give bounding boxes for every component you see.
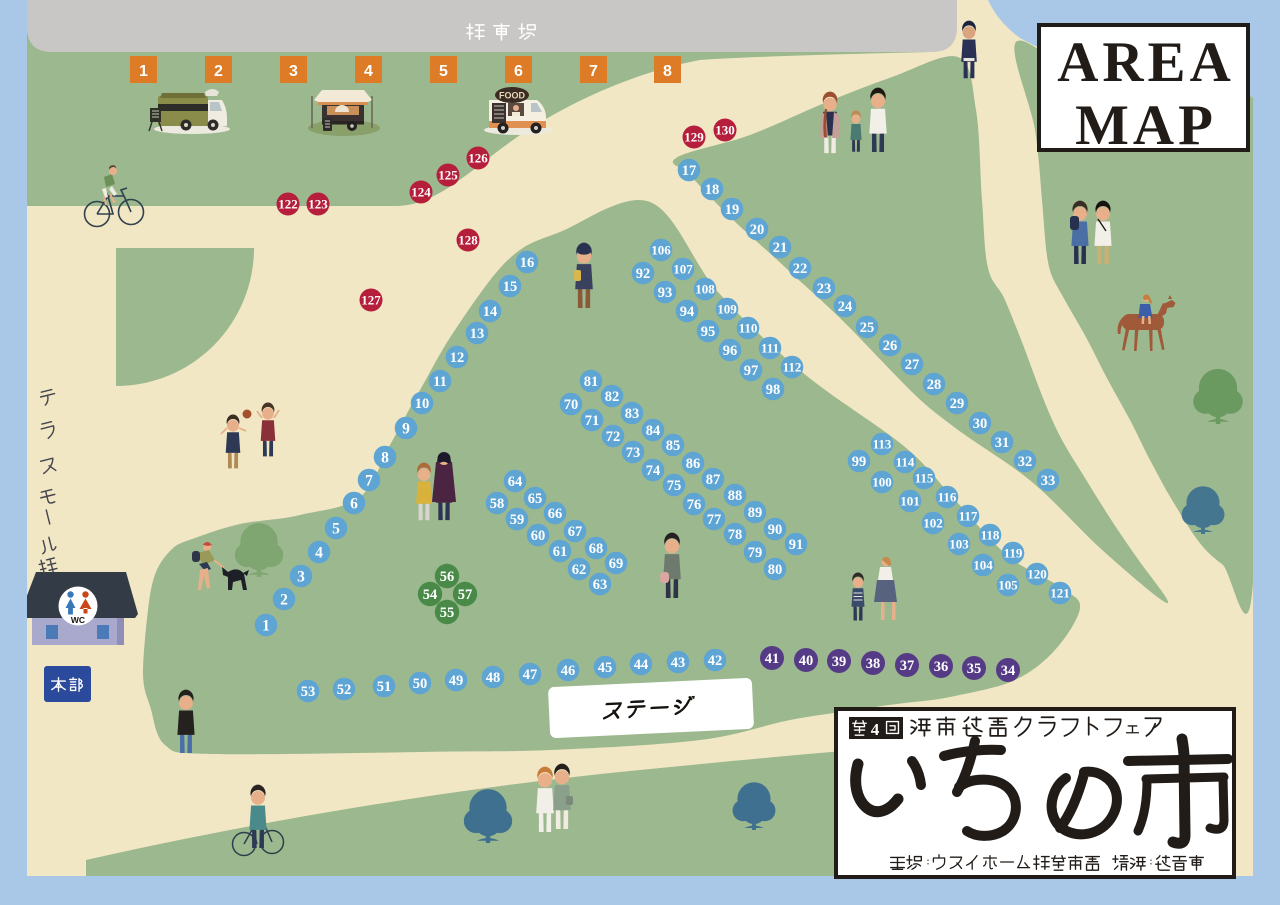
svg-text:105: 105 (998, 578, 1018, 593)
svg-text:128: 128 (458, 233, 478, 248)
svg-text:72: 72 (606, 429, 621, 445)
svg-text:52: 52 (337, 682, 352, 698)
svg-text:43: 43 (671, 655, 686, 671)
svg-text:28: 28 (927, 377, 942, 393)
svg-text:93: 93 (658, 285, 673, 301)
svg-text:18: 18 (705, 182, 720, 198)
svg-text:8: 8 (381, 450, 389, 467)
svg-text:WC: WC (71, 615, 85, 625)
svg-text:AREA: AREA (1057, 31, 1235, 94)
svg-text:76: 76 (687, 497, 702, 513)
svg-text:FOOD: FOOD (499, 91, 525, 101)
svg-text:25: 25 (860, 320, 875, 336)
svg-text:88: 88 (728, 488, 743, 504)
svg-text:51: 51 (377, 679, 392, 695)
svg-text:100: 100 (872, 475, 892, 490)
svg-text:115: 115 (915, 471, 934, 486)
svg-text:49: 49 (449, 673, 464, 689)
svg-text:3: 3 (297, 569, 305, 586)
svg-text:7: 7 (589, 63, 598, 80)
svg-text:38: 38 (866, 656, 881, 672)
svg-text:65: 65 (528, 491, 543, 507)
svg-text:62: 62 (572, 562, 587, 578)
svg-text:116: 116 (938, 490, 957, 505)
svg-text:47: 47 (523, 667, 538, 683)
svg-text:58: 58 (490, 496, 505, 512)
svg-text:9: 9 (402, 421, 410, 438)
svg-text:20: 20 (750, 222, 765, 238)
svg-text:41: 41 (765, 651, 780, 667)
svg-text:77: 77 (707, 512, 722, 528)
svg-text:6: 6 (514, 63, 523, 80)
svg-text:91: 91 (789, 537, 804, 553)
svg-text:85: 85 (666, 438, 681, 454)
svg-text:96: 96 (723, 343, 738, 359)
svg-text:2: 2 (214, 63, 223, 80)
svg-text:99: 99 (852, 454, 867, 470)
svg-text:5: 5 (439, 63, 448, 80)
svg-text:15: 15 (503, 279, 518, 295)
svg-text:1: 1 (139, 63, 148, 80)
svg-text:1: 1 (262, 618, 270, 635)
svg-text:MAP: MAP (1075, 94, 1217, 157)
svg-text:98: 98 (766, 382, 781, 398)
svg-text:124: 124 (411, 185, 431, 200)
svg-text:37: 37 (900, 658, 915, 674)
svg-text:2: 2 (280, 592, 288, 609)
svg-text:22: 22 (793, 261, 808, 277)
svg-text:118: 118 (981, 528, 1000, 543)
svg-text:40: 40 (799, 653, 814, 669)
svg-text:8: 8 (663, 63, 672, 80)
svg-text:83: 83 (625, 406, 640, 422)
svg-text:81: 81 (584, 374, 599, 390)
svg-text:95: 95 (701, 324, 716, 340)
svg-text:57: 57 (458, 587, 473, 603)
svg-text:123: 123 (308, 197, 328, 212)
svg-text:80: 80 (768, 562, 783, 578)
svg-text:33: 33 (1041, 473, 1056, 489)
svg-text:63: 63 (593, 577, 608, 593)
svg-text:12: 12 (450, 350, 465, 366)
svg-text:120: 120 (1027, 567, 1047, 582)
svg-text:60: 60 (531, 528, 546, 544)
svg-text:10: 10 (415, 396, 430, 412)
svg-text:32: 32 (1018, 454, 1033, 470)
svg-text:61: 61 (553, 544, 568, 560)
svg-text:69: 69 (609, 556, 624, 572)
svg-text:90: 90 (768, 522, 783, 538)
svg-text:89: 89 (748, 505, 763, 521)
svg-text:119: 119 (1004, 546, 1023, 561)
svg-text:92: 92 (636, 266, 651, 282)
svg-text:114: 114 (896, 455, 915, 470)
svg-text:74: 74 (646, 463, 661, 479)
svg-text:122: 122 (278, 197, 298, 212)
svg-text:107: 107 (673, 262, 693, 277)
svg-text:106: 106 (651, 243, 671, 258)
svg-text:97: 97 (744, 363, 759, 379)
svg-text:87: 87 (706, 472, 721, 488)
svg-text:59: 59 (510, 512, 525, 528)
svg-text:68: 68 (589, 541, 604, 557)
svg-text:109: 109 (717, 302, 737, 317)
svg-text:94: 94 (680, 304, 695, 320)
svg-text:35: 35 (967, 661, 982, 677)
svg-text:73: 73 (626, 445, 641, 461)
svg-text:21: 21 (773, 240, 788, 256)
svg-text:130: 130 (715, 123, 735, 138)
svg-text:86: 86 (686, 456, 701, 472)
svg-text:24: 24 (838, 299, 853, 315)
svg-text:34: 34 (1001, 663, 1016, 679)
svg-text:56: 56 (440, 569, 455, 585)
svg-text:4: 4 (315, 545, 323, 562)
svg-text:39: 39 (832, 654, 847, 670)
svg-text:78: 78 (728, 527, 743, 543)
svg-text:23: 23 (817, 281, 832, 297)
svg-text:66: 66 (548, 506, 563, 522)
svg-text:112: 112 (783, 360, 802, 375)
svg-text:104: 104 (973, 558, 993, 573)
svg-text:84: 84 (646, 423, 661, 439)
svg-text:17: 17 (682, 163, 697, 179)
svg-text:14: 14 (483, 304, 498, 320)
svg-text:70: 70 (564, 397, 579, 413)
svg-text:3: 3 (289, 63, 298, 80)
svg-text:7: 7 (365, 473, 373, 490)
svg-text:126: 126 (468, 151, 488, 166)
svg-text:27: 27 (905, 357, 920, 373)
svg-text:48: 48 (486, 670, 501, 686)
svg-text:50: 50 (413, 676, 428, 692)
svg-text:53: 53 (301, 684, 316, 700)
svg-text:31: 31 (995, 435, 1010, 451)
svg-text:46: 46 (561, 663, 576, 679)
svg-text:36: 36 (934, 659, 949, 675)
svg-text:113: 113 (873, 437, 892, 452)
svg-text:110: 110 (739, 321, 758, 336)
svg-text:103: 103 (949, 537, 969, 552)
svg-text:71: 71 (585, 413, 600, 429)
svg-text:5: 5 (332, 521, 340, 538)
svg-text:111: 111 (761, 341, 779, 356)
svg-text:82: 82 (605, 389, 620, 405)
svg-text:125: 125 (438, 168, 458, 183)
svg-text:4: 4 (364, 63, 373, 80)
svg-text:29: 29 (950, 396, 965, 412)
svg-text:19: 19 (725, 202, 740, 218)
svg-text:26: 26 (883, 338, 898, 354)
svg-text:44: 44 (634, 657, 649, 673)
svg-text:45: 45 (598, 660, 613, 676)
svg-text:75: 75 (667, 478, 682, 494)
svg-text:11: 11 (433, 374, 447, 390)
svg-text:67: 67 (568, 524, 583, 540)
svg-text:79: 79 (748, 545, 763, 561)
svg-text:16: 16 (520, 255, 535, 271)
svg-text:101: 101 (900, 494, 920, 509)
svg-text:54: 54 (423, 587, 438, 603)
svg-text:121: 121 (1050, 586, 1070, 601)
svg-text:13: 13 (470, 326, 485, 342)
svg-text:30: 30 (973, 416, 988, 432)
svg-text:127: 127 (361, 293, 381, 308)
svg-text:64: 64 (508, 474, 523, 490)
svg-text:55: 55 (440, 605, 455, 621)
svg-text:42: 42 (708, 653, 723, 669)
svg-text:108: 108 (695, 282, 715, 297)
svg-text:117: 117 (959, 509, 978, 524)
svg-text:102: 102 (923, 516, 943, 531)
svg-text:129: 129 (684, 130, 704, 145)
svg-text:4: 4 (871, 720, 880, 739)
svg-text:6: 6 (350, 496, 358, 513)
